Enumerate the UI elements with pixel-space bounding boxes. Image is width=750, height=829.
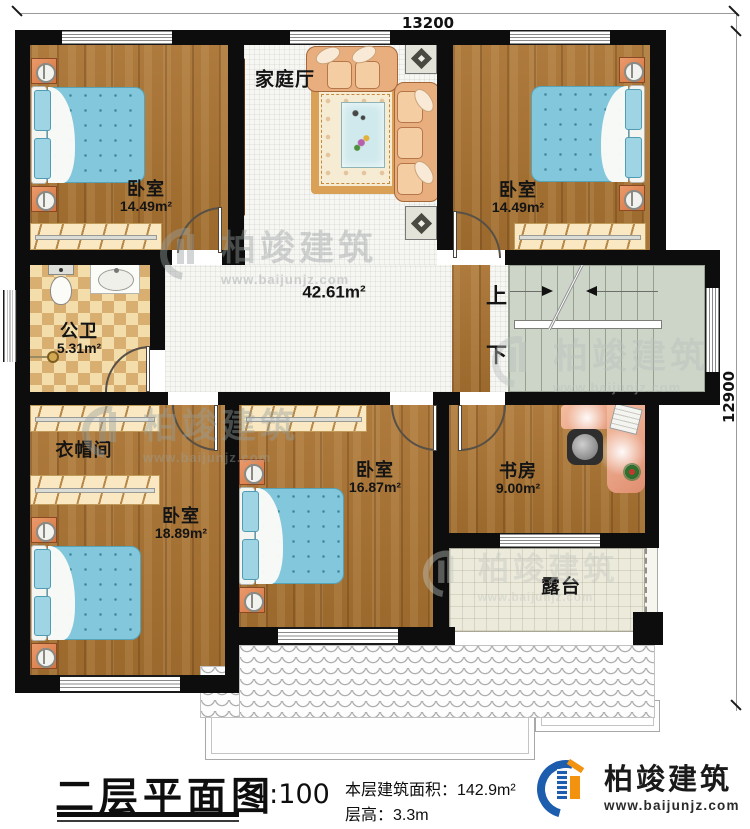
roof-tiles bbox=[239, 645, 655, 718]
stair-direction-arrow bbox=[586, 286, 597, 296]
wall-segment bbox=[437, 45, 453, 250]
stair-down-label: 下 bbox=[486, 344, 508, 368]
side-table bbox=[405, 206, 437, 240]
corner-pier bbox=[633, 612, 663, 645]
wall-segment bbox=[505, 392, 720, 405]
wall-segment bbox=[645, 392, 659, 548]
door-leaf bbox=[458, 405, 462, 451]
brand-url: www.baijunjz.com bbox=[604, 798, 740, 813]
wall-segment bbox=[15, 250, 172, 265]
room-label-study: 书房9.00m² bbox=[496, 461, 540, 497]
room-label-cloakroom: 衣帽间 bbox=[56, 440, 113, 460]
dimension-tick bbox=[11, 5, 22, 16]
nightstand-lamp bbox=[31, 186, 57, 212]
floor-plan: 家庭厅 卧室14.49m² 卧室14.49m² 42.61m² 公卫5.31m²… bbox=[0, 0, 750, 828]
room-label-bedroom-top-right: 卧室14.49m² bbox=[492, 180, 544, 216]
wardrobe bbox=[241, 405, 367, 432]
room-area: 9.00m² bbox=[496, 481, 540, 497]
window bbox=[290, 30, 390, 45]
dimension-line-right bbox=[736, 14, 737, 711]
room-name: 衣帽间 bbox=[56, 440, 113, 460]
plant-icon bbox=[622, 462, 642, 482]
dimension-line-top bbox=[20, 13, 738, 14]
room-area: 42.61m² bbox=[302, 282, 365, 301]
room-area: 16.87m² bbox=[349, 480, 401, 496]
door-leaf bbox=[146, 346, 150, 392]
floor-area-text: 本层建筑面积：142.9m² bbox=[345, 776, 516, 800]
sliding-door-window bbox=[500, 533, 600, 548]
sofa bbox=[306, 46, 398, 92]
bed-pillow bbox=[242, 491, 259, 532]
room-label-bedroom-bottom-left: 卧室18.89m² bbox=[155, 506, 207, 542]
bed-pillow bbox=[34, 549, 51, 589]
room-label-family-hall: 家庭厅 bbox=[255, 69, 315, 90]
sofa-cushion bbox=[355, 61, 380, 89]
title-underline-thin bbox=[57, 820, 239, 822]
stair-guide-line bbox=[596, 291, 658, 292]
nightstand-lamp bbox=[31, 643, 57, 669]
dimension-right-value: 12900 bbox=[720, 371, 738, 423]
sofa-cushion bbox=[327, 61, 352, 89]
brand-logo-icon bbox=[537, 760, 595, 818]
coffee-table bbox=[341, 102, 385, 168]
room-label-bedroom-bottom-middle: 卧室16.87m² bbox=[349, 460, 401, 496]
room-name: 公卫 bbox=[57, 321, 101, 341]
wall-segment bbox=[222, 250, 245, 265]
room-area: 14.49m² bbox=[492, 200, 544, 216]
floor-height-text: 层高：3.3m bbox=[345, 801, 429, 825]
nightstand-lamp bbox=[239, 587, 265, 613]
room-name: 卧室 bbox=[155, 506, 207, 526]
wall-segment bbox=[225, 392, 239, 693]
bed-pillow bbox=[34, 90, 51, 131]
stair-landing-strip bbox=[452, 265, 490, 392]
window bbox=[705, 288, 720, 372]
sink-basin bbox=[98, 269, 134, 291]
room-label-terrace: 露台 bbox=[541, 576, 581, 597]
wall-segment bbox=[505, 250, 666, 265]
door-leaf bbox=[218, 207, 222, 253]
stair-guide-line bbox=[510, 291, 544, 292]
stair-up-label: 上 bbox=[486, 285, 508, 309]
room-name: 卧室 bbox=[492, 180, 544, 200]
wall-segment bbox=[150, 265, 165, 350]
stair-landing bbox=[660, 266, 704, 391]
nightstand-lamp bbox=[31, 58, 57, 84]
window bbox=[62, 30, 172, 45]
bed bbox=[531, 85, 645, 183]
wardrobe bbox=[30, 223, 162, 250]
office-chair bbox=[567, 429, 603, 465]
bed bbox=[31, 545, 141, 641]
room-label-hall-area: 42.61m² bbox=[302, 282, 365, 301]
room-area: 14.49m² bbox=[120, 199, 172, 215]
nightstand-lamp bbox=[239, 459, 265, 485]
dimension-tick bbox=[728, 5, 739, 16]
room-area: 5.31m² bbox=[57, 341, 101, 357]
drawing-scale: 1:100 bbox=[252, 779, 330, 810]
sofa bbox=[394, 82, 440, 202]
brand-name: 柏竣建筑 bbox=[604, 766, 740, 795]
room-name: 卧室 bbox=[349, 460, 401, 480]
sofa-cushion bbox=[397, 127, 423, 159]
bed-pillow bbox=[34, 596, 51, 636]
nightstand-lamp bbox=[31, 517, 57, 543]
stair-entry-strip bbox=[490, 265, 508, 392]
brand-logo: 柏竣建筑 www.baijunjz.com bbox=[537, 760, 740, 818]
bed bbox=[239, 487, 344, 585]
window bbox=[60, 675, 180, 693]
bed bbox=[31, 86, 145, 184]
room-label-bathroom: 公卫5.31m² bbox=[57, 321, 101, 357]
wall-segment bbox=[15, 30, 30, 693]
stair-direction-arrow bbox=[542, 286, 553, 296]
nightstand-lamp bbox=[619, 57, 645, 83]
toilet-bowl bbox=[50, 276, 72, 305]
dimension-top-value: 13200 bbox=[402, 14, 454, 32]
wardrobe bbox=[30, 475, 160, 505]
bed-pillow bbox=[625, 89, 642, 130]
sink-icon bbox=[90, 264, 140, 294]
room-name: 书房 bbox=[496, 461, 540, 481]
door-leaf bbox=[453, 211, 457, 258]
room-area: 18.89m² bbox=[155, 526, 207, 542]
wall-segment bbox=[650, 30, 666, 265]
bed-pillow bbox=[625, 137, 642, 178]
room-name: 家庭厅 bbox=[255, 69, 315, 90]
wall-segment bbox=[15, 392, 168, 405]
bed-pillow bbox=[242, 539, 259, 580]
wardrobe bbox=[30, 405, 160, 432]
side-table bbox=[405, 42, 437, 74]
room-name: 露台 bbox=[541, 576, 581, 597]
door-leaf bbox=[433, 405, 437, 451]
toilet-tank bbox=[48, 264, 74, 275]
room-name: 卧室 bbox=[120, 179, 172, 199]
stair-handrail bbox=[514, 320, 662, 329]
floor-drain-line bbox=[30, 356, 48, 358]
bed-pillow bbox=[34, 138, 51, 179]
toilet-icon bbox=[46, 264, 76, 308]
window bbox=[510, 30, 610, 45]
title-underline bbox=[57, 812, 239, 817]
wall-segment bbox=[218, 392, 390, 405]
room-label-bedroom-top-left: 卧室14.49m² bbox=[120, 179, 172, 215]
wardrobe bbox=[514, 223, 646, 250]
wall-segment bbox=[228, 45, 244, 250]
window bbox=[3, 290, 17, 362]
door-leaf bbox=[214, 405, 218, 451]
nightstand-lamp bbox=[619, 185, 645, 211]
window bbox=[278, 627, 398, 645]
